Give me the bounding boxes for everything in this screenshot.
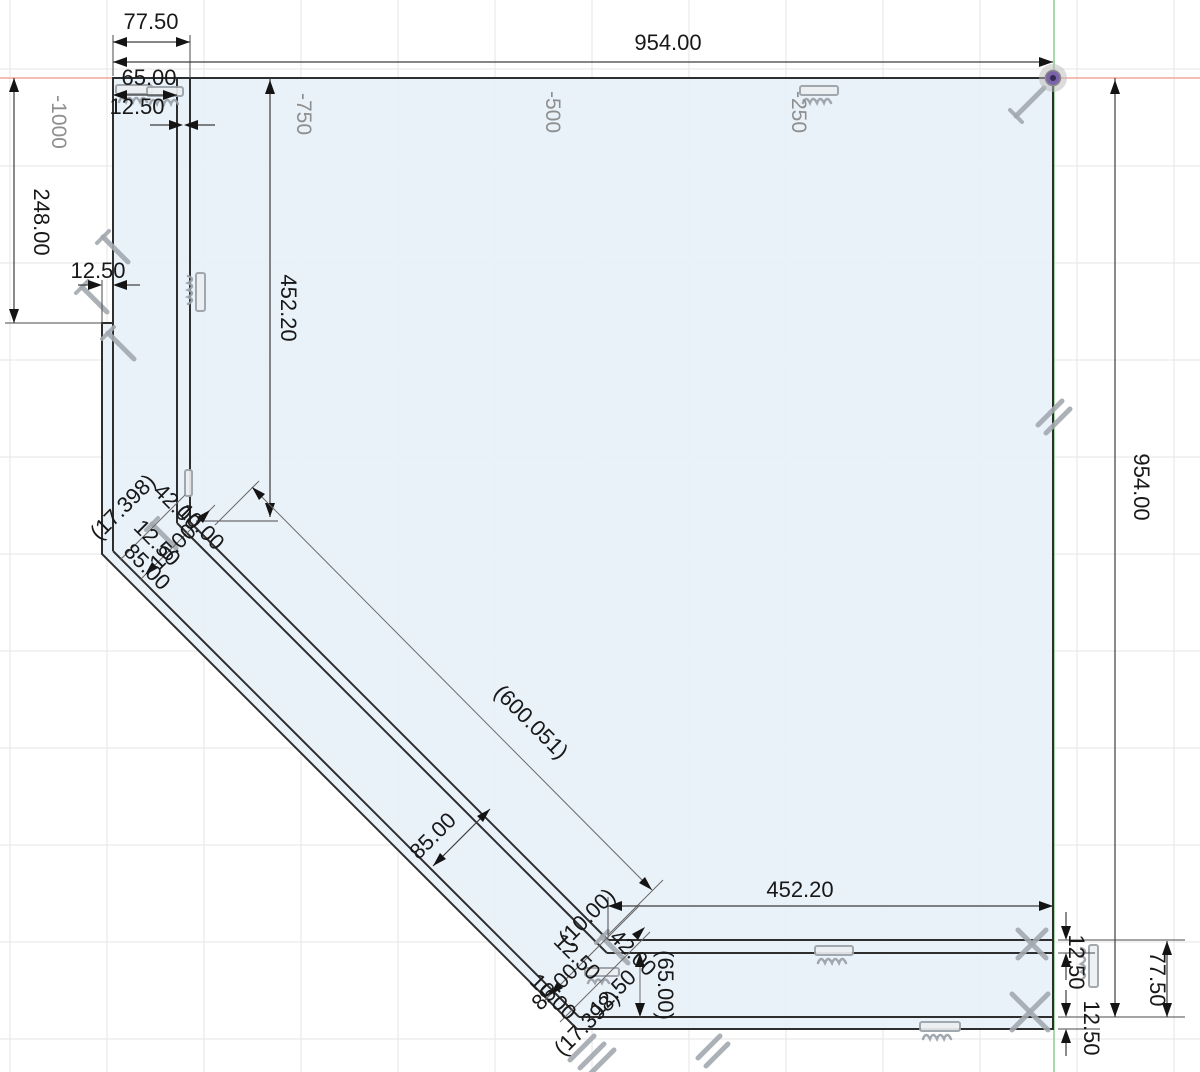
parallel-constraint-icon[interactable] [698, 1036, 728, 1066]
origin-point[interactable] [1039, 64, 1067, 92]
dim-bottom-span[interactable]: 452.20 [766, 877, 833, 902]
grid-label-x1: -1000 [47, 95, 70, 149]
dim-left-span[interactable]: 452.20 [276, 274, 301, 341]
dim-top-overall[interactable]: 954.00 [634, 30, 701, 55]
dim-left-step[interactable]: 12.50 [70, 258, 125, 283]
dim-bottom-flange-top[interactable]: 12.50 [1064, 934, 1089, 989]
grid-label-x2: -750 [292, 93, 315, 135]
ground-icon-bar [815, 946, 853, 955]
ground-constraint-icon-small[interactable] [185, 470, 192, 496]
dim-top-inner-flange[interactable]: 12.50 [109, 94, 164, 119]
pin-stem [82, 287, 107, 312]
dim-top-member[interactable]: 65.00 [121, 65, 176, 90]
dim-top-flange[interactable]: 77.50 [123, 9, 178, 34]
sketch-svg: 77.50 954.00 65.00 12.50 -1000 248.00 12… [0, 0, 1200, 1072]
ground-icon-bar [920, 1022, 960, 1031]
dim-bottom-flange-bottom[interactable]: 12.50 [1079, 1000, 1104, 1055]
dim-right-overall[interactable]: 954.00 [1129, 453, 1154, 520]
ground-icon-bar [1089, 945, 1098, 987]
grid-label-x4: -250 [787, 91, 810, 133]
sketch-canvas[interactable]: 77.50 954.00 65.00 12.50 -1000 248.00 12… [0, 0, 1200, 1072]
ground-constraint-icon[interactable] [920, 1022, 960, 1039]
origin-center [1050, 75, 1056, 81]
ground-icon-hatch [923, 1035, 951, 1039]
sketch-profile[interactable] [102, 78, 1053, 1029]
ground-icon-bar [196, 273, 205, 311]
dim-left-offset[interactable]: 248.00 [29, 188, 54, 255]
dim-bottom-member[interactable]: 77.50 [1145, 951, 1170, 1006]
grid-label-x3: -500 [541, 91, 564, 133]
ground-icon-bar [185, 470, 192, 496]
